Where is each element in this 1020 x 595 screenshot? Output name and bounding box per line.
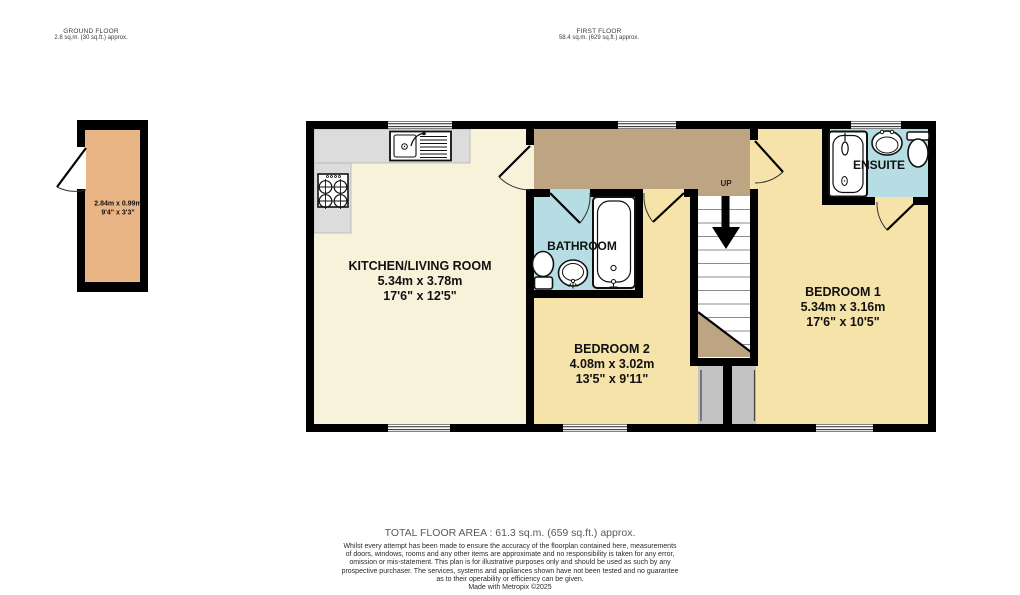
sink-icon [872, 130, 902, 155]
window [816, 425, 873, 432]
kitchen-living-dims-imperial: 17'6" x 12'5" [383, 289, 456, 303]
door-opening [643, 189, 684, 197]
bath-drain [611, 265, 616, 270]
floorplan-drawing: 2.84m x 0.99m 9'4" x 3'3" [0, 0, 1020, 595]
wall [526, 121, 534, 145]
ground-floor-plan: 2.84m x 0.99m 9'4" x 3'3" [57, 120, 148, 292]
bath-tap [612, 280, 616, 284]
window [851, 122, 901, 129]
disclaimer-line: as to their operability or efficiency ca… [0, 576, 1020, 584]
wall [526, 290, 643, 298]
sink-inner [876, 137, 898, 153]
hob-icon [318, 174, 349, 209]
door-opening [750, 140, 758, 189]
sink-tap-head [422, 132, 426, 136]
toilet-icon [533, 252, 554, 290]
sink-tap [880, 130, 883, 133]
kitchen-living-name: KITCHEN/LIVING ROOM [348, 259, 491, 273]
bedroom1-dims-imperial: 17'6" x 10'5" [806, 315, 879, 329]
bedroom2-dims-imperial: 13'5" x 9'11" [576, 372, 649, 386]
door-opening [875, 197, 913, 205]
toilet-cistern [535, 277, 553, 289]
sink-inner [563, 264, 584, 281]
wall [750, 189, 758, 366]
disclaimer-line: of doors, windows, rooms and any other i… [0, 551, 1020, 559]
toilet-bowl [533, 252, 554, 277]
bedroom2-name: BEDROOM 2 [574, 342, 650, 356]
bedroom1-dims-metric: 5.34m x 3.16m [801, 300, 886, 314]
total-floor-area: TOTAL FLOOR AREA : 61.3 sq.m. (659 sq.ft… [0, 527, 1020, 539]
window [388, 425, 450, 432]
store-dims-imperial: 9'4" x 3'3" [101, 210, 134, 217]
wall [690, 358, 758, 366]
under-stair-right [732, 366, 756, 424]
window [388, 122, 452, 129]
stairs-up-label: UP [720, 179, 732, 188]
bedroom1-name: BEDROOM 1 [805, 285, 881, 299]
wall [928, 121, 936, 432]
ensuite-name: ENSUITE [853, 158, 905, 172]
window [563, 425, 627, 432]
wall [306, 121, 314, 432]
wall [690, 189, 698, 366]
wall [822, 197, 875, 205]
under-stair [698, 366, 756, 424]
bedroom2-dims-metric: 4.08m x 3.02m [570, 357, 655, 371]
staircase [698, 196, 751, 358]
drainer-lines [420, 137, 447, 158]
landing-area [534, 129, 750, 196]
metropix-credit: Made with Metropix ©2025 [0, 584, 1020, 592]
stair-arrow-shaft [722, 196, 730, 227]
bathroom-name: BATHROOM [547, 239, 617, 253]
disclaimer-line: prospective purchaser. The services, sys… [0, 568, 1020, 576]
disclaimer-line: omission or mis-statement. This plan is … [0, 559, 1020, 567]
wall [723, 366, 732, 424]
disclaimer-line: Whilst every attempt has been made to en… [0, 543, 1020, 551]
first-floor-plan: KITCHEN/LIVING ROOM 5.34m x 3.78m 17'6" … [306, 121, 936, 432]
window [618, 122, 676, 129]
floorplan-page: GROUND FLOOR 2.8 sq.m. (30 sq.ft.) appro… [0, 0, 1020, 595]
sink-tap [890, 130, 893, 133]
wall [750, 121, 758, 140]
bath-tap [842, 142, 848, 155]
sink-drain-dot [404, 146, 405, 147]
kitchen-sink-icon [390, 132, 451, 161]
footer: TOTAL FLOOR AREA : 61.3 sq.m. (659 sq.ft… [0, 527, 1020, 592]
sink-tap [571, 279, 574, 282]
door-opening [550, 189, 590, 197]
kitchen-living-dims-metric: 5.34m x 3.78m [378, 274, 463, 288]
toilet-icon [907, 132, 929, 167]
door-opening [526, 145, 534, 189]
toilet-bowl [908, 139, 928, 167]
hob-body [318, 174, 348, 207]
under-stair-left [698, 366, 723, 424]
store-dims-metric: 2.84m x 0.99m [94, 201, 141, 208]
wall [526, 189, 534, 424]
wall [635, 189, 643, 298]
bath-drain-dot [844, 180, 845, 181]
